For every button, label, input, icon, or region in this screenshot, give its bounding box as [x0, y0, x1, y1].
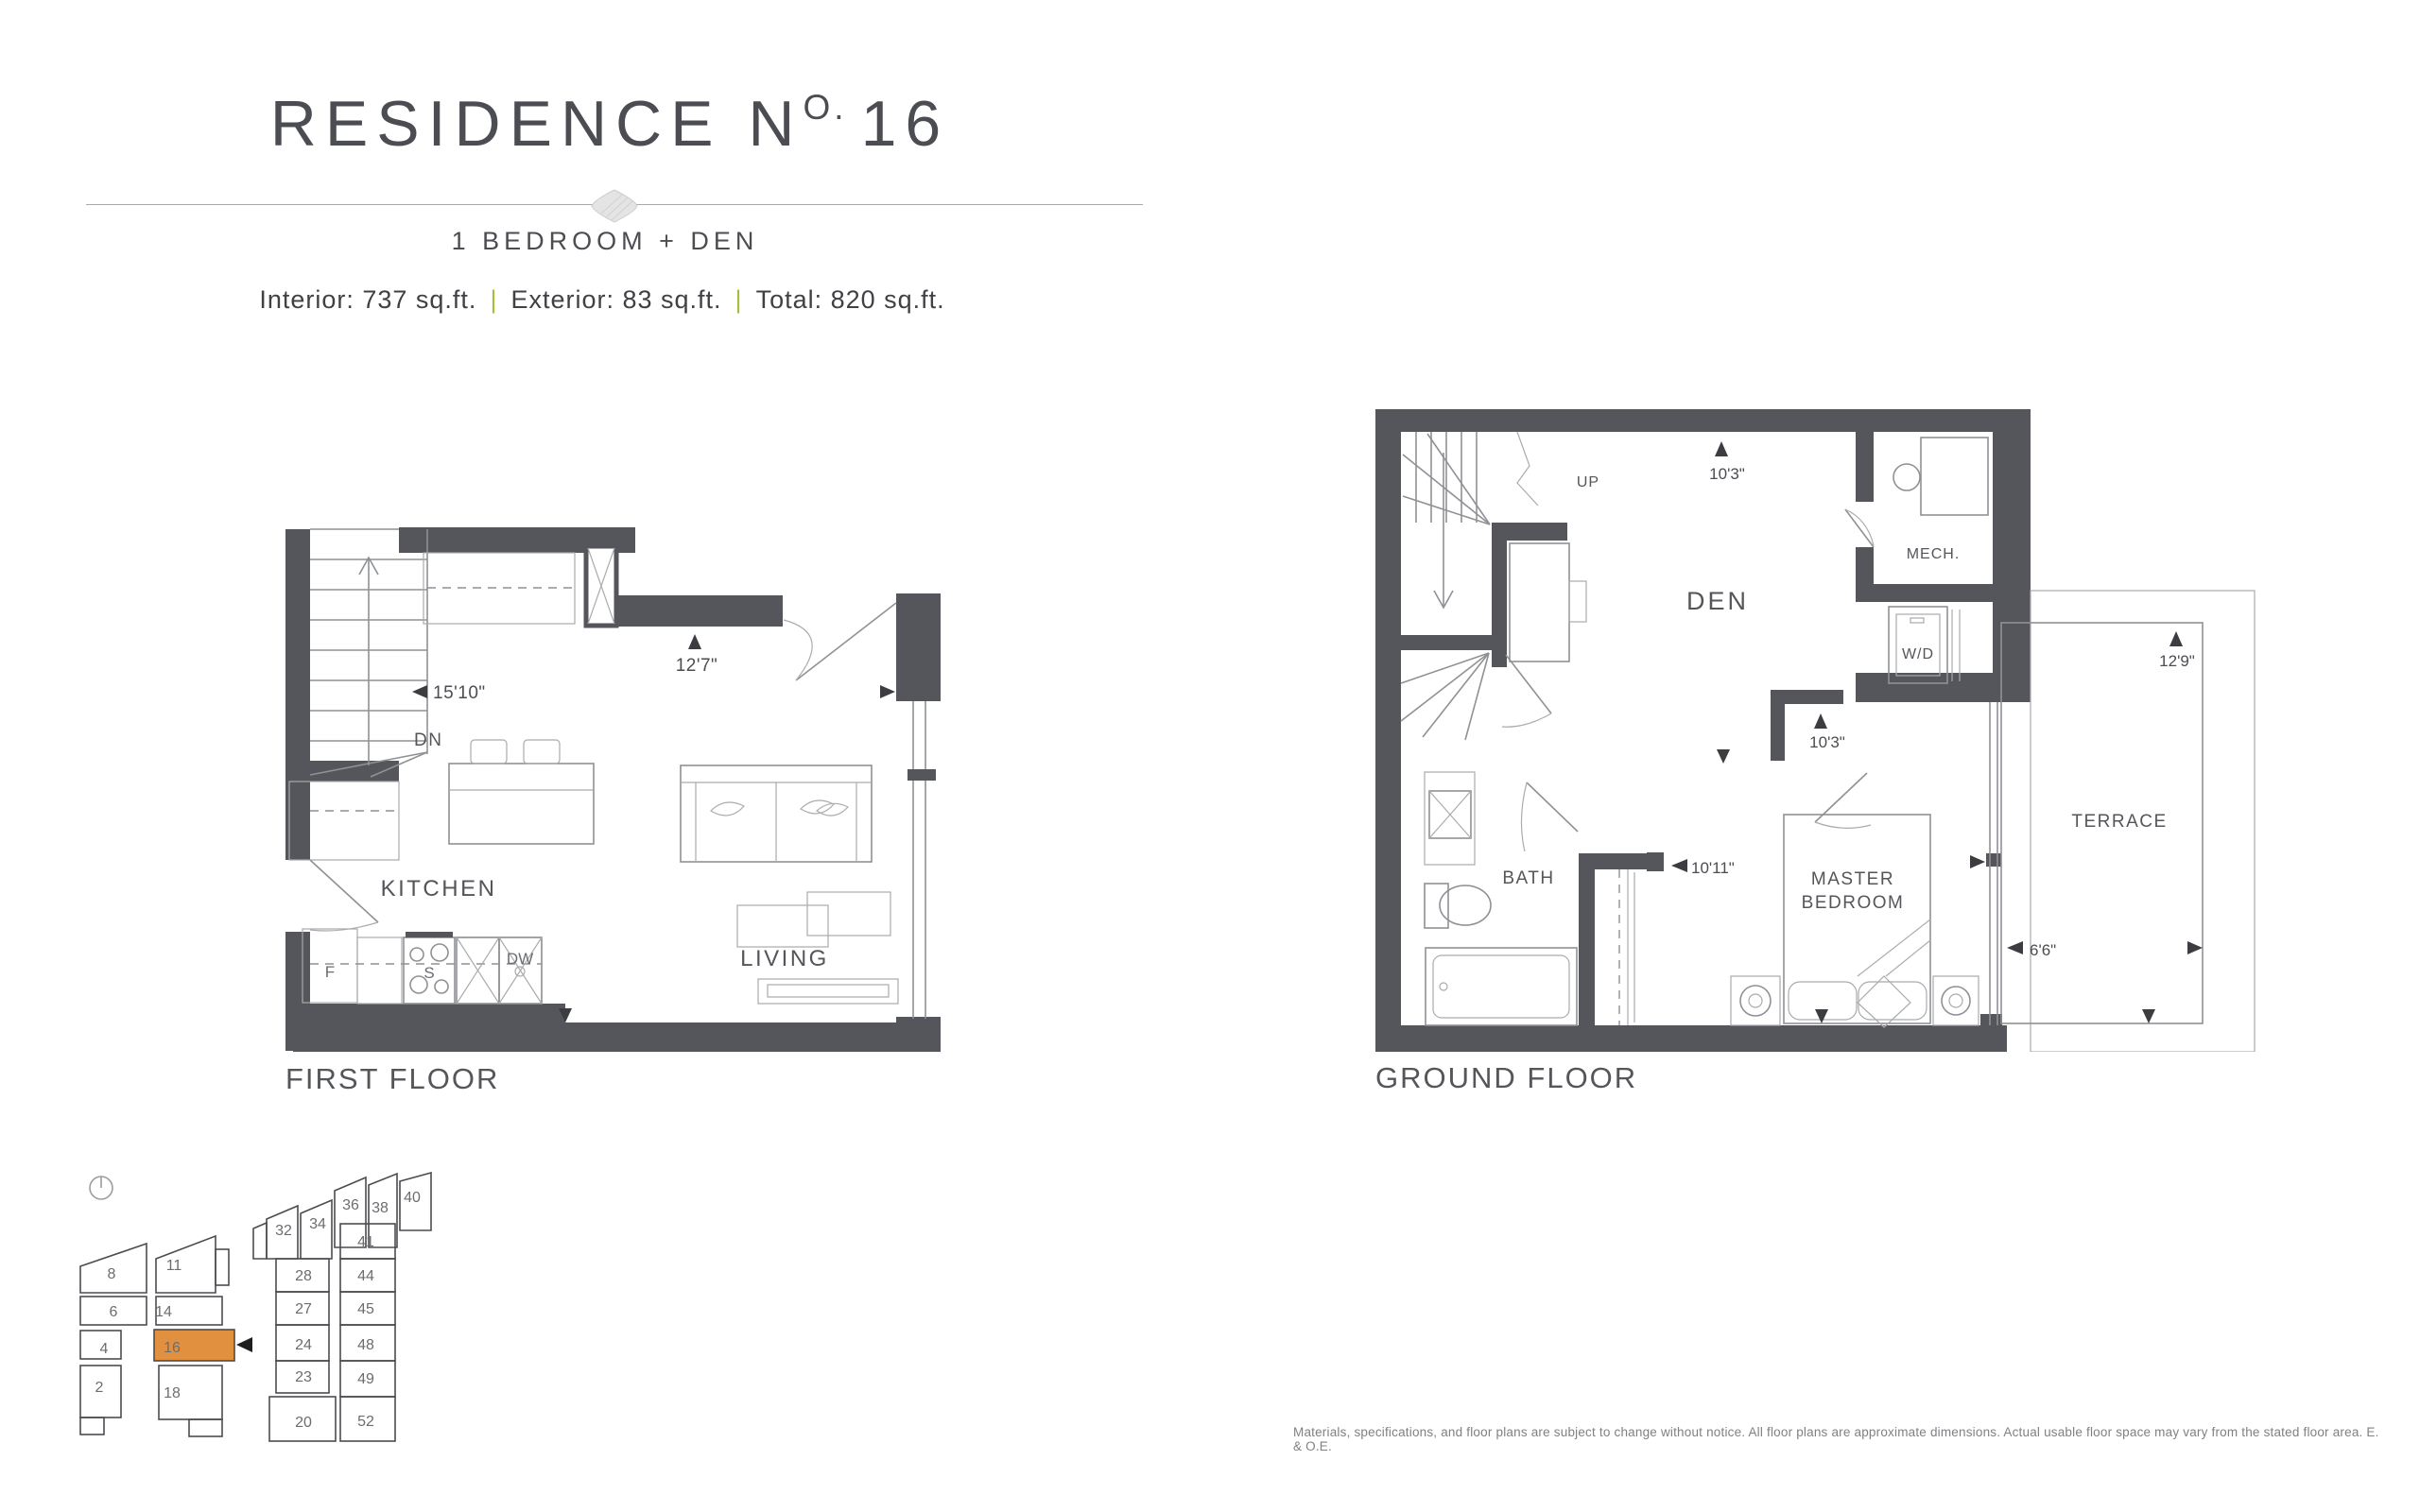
title-prefix: RESIDENCE N — [270, 88, 804, 160]
unit-label: 49 — [357, 1371, 374, 1387]
dim-depth: 12'7" — [676, 656, 718, 676]
bath-label: BATH — [1502, 868, 1554, 888]
ground-floor-plan: UP 10'3" DEN MECH. W/D 10'3" BATH 10'11"… — [1375, 409, 2259, 1052]
dim-width: 15'10" — [433, 683, 486, 703]
washer-dryer — [1889, 607, 1960, 683]
staircase-up — [1403, 432, 1538, 608]
north-compass-icon — [90, 1177, 112, 1199]
unit-label: 28 — [295, 1268, 312, 1284]
living-label: LIVING — [740, 946, 829, 971]
window-wall — [907, 701, 936, 1019]
kitchen-island — [449, 740, 594, 844]
unit-label: 38 — [372, 1200, 389, 1216]
interior-area: Interior: 737 sq.ft. — [259, 285, 476, 314]
stat-separator: | — [722, 285, 756, 314]
toilet — [1425, 884, 1491, 928]
area-rug — [807, 892, 890, 936]
unit-label: 40 — [404, 1190, 421, 1206]
area-stats: Interior: 737 sq.ft.|Exterior: 83 sq.ft.… — [0, 285, 1204, 315]
unit-label: 36 — [342, 1197, 359, 1213]
first-floor-title: FIRST FLOOR — [285, 1062, 499, 1096]
dim-arrow-up-icon — [1715, 441, 1728, 456]
shaft — [586, 546, 616, 626]
dishwasher-label: DW — [507, 950, 533, 968]
kitchen-label: KITCHEN — [381, 876, 497, 902]
dim-arrow-right-icon — [880, 685, 895, 698]
unit-label: 24 — [295, 1337, 312, 1353]
unit-label: 6 — [110, 1304, 118, 1320]
bath-door — [1521, 782, 1578, 851]
dim-arrow-down-icon — [1717, 749, 1730, 764]
stair-up-label: UP — [1577, 474, 1599, 490]
dim-arrow-left-icon — [1671, 859, 1687, 872]
unit-label: 41 — [357, 1234, 374, 1250]
nightstand-left — [1731, 976, 1780, 1025]
staircase-winders — [1401, 653, 1489, 740]
dim-arrow-up-icon — [688, 634, 701, 649]
unit-label-highlighted: 16 — [164, 1340, 181, 1356]
dim-arrow-right-icon — [1970, 855, 1985, 868]
stat-separator: | — [476, 285, 510, 314]
first-floor-plan: 15'10" 12'7" DN KITCHEN LIVING F S DW — [285, 527, 988, 1066]
total-area: Total: 820 sq.ft. — [756, 285, 945, 314]
unit-label: 14 — [155, 1304, 172, 1320]
leaf-ornament-icon — [590, 188, 639, 224]
sliding-closet — [1619, 869, 1634, 1025]
understair-door — [1502, 655, 1551, 727]
unit-label: 20 — [295, 1415, 312, 1431]
ground-floor-title: GROUND FLOOR — [1375, 1061, 1637, 1095]
dim-terrace-depth: 12'9" — [2159, 652, 2195, 670]
unit-label: 11 — [166, 1258, 182, 1274]
unit-label: 8 — [108, 1266, 116, 1282]
hall-closet — [423, 553, 575, 624]
unit-label: 27 — [295, 1301, 312, 1317]
dim-bedroom-depth: 10'11" — [1691, 859, 1735, 877]
dim-arrow-down-icon — [1815, 1009, 1828, 1023]
unit-label: 18 — [164, 1385, 181, 1401]
unit-label: 45 — [357, 1301, 374, 1317]
nightstand-right — [1933, 976, 1979, 1025]
laundry-label: W/D — [1902, 646, 1934, 662]
floorplan-page: { "header": { "title": { "prefix": "RESI… — [0, 0, 2420, 1512]
dim-arrow-left-icon — [2007, 941, 2023, 954]
dim-arrow-up-icon — [1814, 713, 1827, 729]
sink-cabinet — [457, 937, 499, 1004]
master-bedroom-label-1: MASTER — [1811, 869, 1894, 889]
title-number: 16 — [861, 88, 950, 160]
bathtub — [1426, 948, 1577, 1025]
stove-label: S — [423, 964, 434, 982]
fridge-label: F — [325, 963, 335, 981]
staircase-down — [310, 529, 427, 777]
dim-den-width: 10'3" — [1709, 465, 1745, 483]
unit-label: 4 — [100, 1341, 109, 1357]
title-superscript: O. — [804, 88, 848, 127]
unit-label: 44 — [357, 1268, 374, 1284]
unit-label: 52 — [357, 1414, 374, 1430]
unit-label: 34 — [309, 1216, 326, 1232]
dim-terrace-width: 6'6" — [2030, 941, 2056, 959]
sofa — [681, 765, 872, 862]
exterior-area: Exterior: 83 sq.ft. — [510, 285, 721, 314]
media-console — [758, 979, 898, 1004]
dim-arrow-left-icon — [412, 685, 427, 698]
disclaimer-text: Materials, specifications, and floor pla… — [1293, 1425, 2390, 1453]
entry-door — [784, 603, 896, 680]
plan-subtitle: 1 BEDROOM + DEN — [0, 227, 1210, 256]
stair-dn-label: DN — [414, 730, 442, 750]
desk — [1510, 543, 1586, 661]
mech-label: MECH. — [1907, 546, 1961, 562]
coffee-table — [737, 905, 828, 947]
keyplan-left-building — [80, 1236, 234, 1436]
page-title: RESIDENCE NO.16 — [0, 87, 1219, 161]
dim-arrow-right-icon — [2187, 941, 2203, 954]
bath-vanity — [1425, 772, 1475, 865]
vestibule-door — [310, 860, 378, 931]
den-label: DEN — [1686, 587, 1749, 615]
unit-label: 2 — [95, 1380, 104, 1396]
dishwasher — [499, 937, 542, 1004]
unit-label: 23 — [295, 1369, 312, 1385]
dim-arrow-up-icon — [2169, 631, 2183, 646]
unit-pointer-icon — [236, 1337, 252, 1352]
terrace-label: TERRACE — [2071, 812, 2167, 832]
dim-arrow-down-icon — [2142, 1009, 2155, 1023]
dim-bedroom-width: 10'3" — [1809, 733, 1845, 751]
master-bedroom-label-2: BEDROOM — [1802, 893, 1905, 913]
keyplan: 8 11 6 14 4 16 2 18 32 34 36 38 40 41 28… — [66, 1172, 444, 1446]
bedroom-door — [1815, 773, 1871, 828]
unit-label: 48 — [357, 1337, 374, 1353]
bed — [1784, 815, 1930, 1027]
unit-label: 32 — [275, 1223, 292, 1239]
